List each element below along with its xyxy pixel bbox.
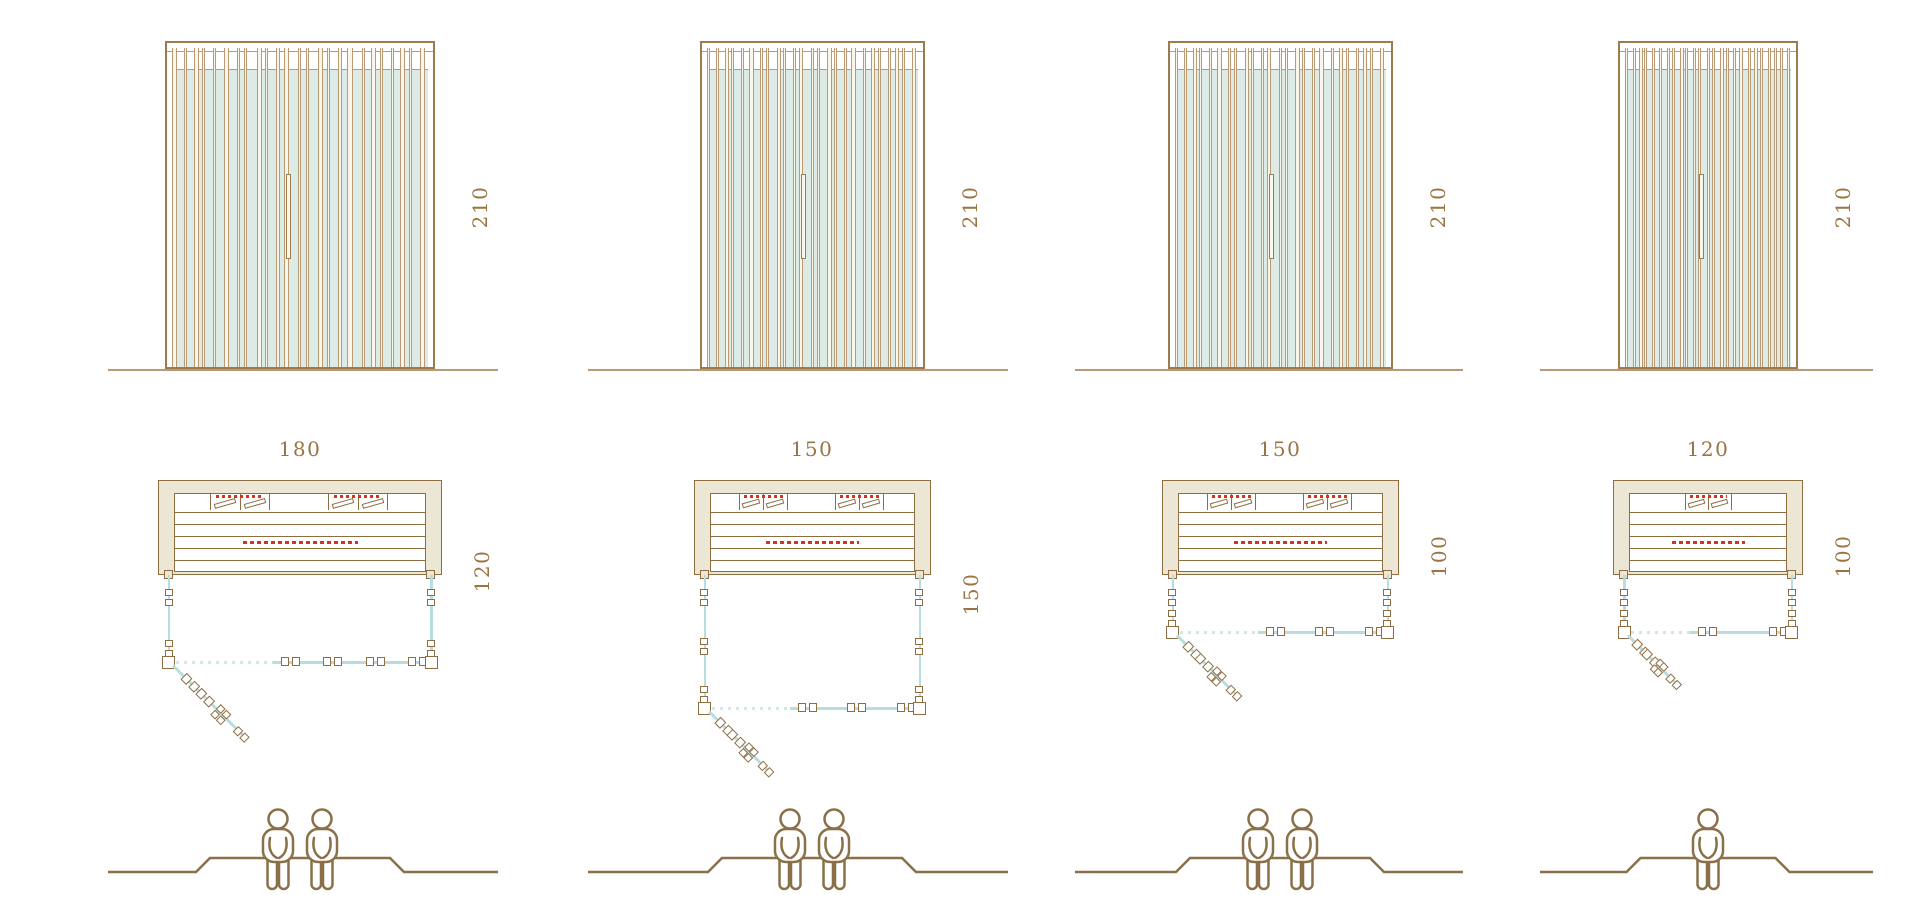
- elevation-slat: [716, 48, 719, 367]
- glass-clamp: [700, 638, 708, 645]
- glass-clamp: [809, 703, 817, 712]
- glass-clamp: [292, 657, 300, 666]
- bench-slat-line: [1179, 548, 1382, 549]
- elevation-slat: [371, 48, 377, 367]
- height-label-text: 210: [1831, 167, 1855, 247]
- elevation-slat: [1720, 48, 1724, 367]
- elevation-slat: [707, 48, 711, 367]
- elevation-slat: [793, 48, 796, 367]
- elevation-slat: [811, 48, 814, 367]
- elevation-slat: [184, 48, 187, 367]
- glass-clamp: [1698, 627, 1706, 636]
- backrest-post: [328, 494, 329, 510]
- elevation-slat: [362, 48, 365, 367]
- glass-clamp: [427, 589, 435, 596]
- height-label: 210: [1803, 195, 1883, 219]
- heater-strip-bench: [1672, 541, 1744, 544]
- elevation-slat: [172, 48, 177, 367]
- elevation-slat: [276, 48, 279, 367]
- height-label-text: 210: [958, 167, 982, 247]
- glass-clamp: [1315, 627, 1323, 636]
- person-icon: [1693, 810, 1723, 890]
- width-label: 120: [1648, 437, 1768, 461]
- elevation-slat: [1659, 48, 1663, 367]
- elevation-slat: [1295, 48, 1300, 367]
- elevation-slat: [1685, 48, 1688, 367]
- elevation-slat: [306, 48, 309, 367]
- elevation-slat: [202, 48, 205, 367]
- backrest-louver: [1234, 499, 1252, 509]
- glass-clamp: [1168, 599, 1176, 606]
- elevation-slat: [1672, 48, 1675, 367]
- depth-label-text: 100: [1831, 516, 1855, 596]
- elevation-slat: [1739, 48, 1742, 367]
- glass-clamp: [1788, 599, 1796, 606]
- elevation-slat: [1302, 48, 1305, 367]
- elevation-slat: [1346, 48, 1349, 367]
- height-label-text: 210: [1426, 167, 1450, 247]
- door-swing: [1627, 634, 1677, 684]
- person-icon: [1243, 810, 1273, 890]
- bench-slat-line: [1630, 524, 1786, 525]
- bench-figure-group: [588, 800, 1008, 910]
- elevation-slat: [1774, 48, 1777, 367]
- elevation-slat: [1319, 48, 1323, 367]
- glass-clamp: [408, 657, 416, 666]
- bench-slat-line: [1630, 512, 1786, 513]
- depth-label-text: 150: [959, 554, 983, 634]
- elevation-slat: [863, 48, 866, 367]
- elevation-slat: [318, 48, 324, 367]
- backrest-post: [1255, 494, 1256, 510]
- backrest-louver: [838, 499, 856, 509]
- bench-slat-line: [175, 548, 425, 549]
- person-icon: [819, 810, 849, 890]
- sauna-size-diagram: 210180120210150150210150100210120100: [0, 0, 1920, 918]
- elevation-slat: [420, 48, 425, 367]
- depth-label: 120: [442, 559, 522, 583]
- depth-label-text: 100: [1427, 516, 1451, 596]
- glass-clamp: [323, 657, 331, 666]
- elevation-slat: [1380, 48, 1384, 367]
- elevation-slat: [1625, 48, 1628, 367]
- bench-slat-line: [175, 560, 425, 561]
- backrest-louver: [1330, 499, 1348, 509]
- elevation-slat: [265, 48, 268, 367]
- bench-slat-line: [711, 512, 914, 513]
- backrest-assembly: [739, 494, 788, 512]
- glass-clamp: [1365, 627, 1373, 636]
- glass-clamp: [1620, 599, 1628, 606]
- elevation-slat: [1667, 48, 1670, 367]
- bench-figure-group: [1075, 800, 1463, 910]
- height-label: 210: [930, 195, 1010, 219]
- elevation-slat: [338, 48, 341, 367]
- glass-clamp: [1383, 599, 1391, 606]
- door-handle: [286, 174, 291, 259]
- glass-clamp: [847, 703, 855, 712]
- elevation-slat: [1339, 48, 1344, 367]
- heater-strip-backrest: [1308, 495, 1347, 498]
- backrest-assembly: [328, 494, 388, 512]
- bench-slat-line: [175, 512, 425, 513]
- person-icon: [307, 810, 337, 890]
- elevation-slat: [380, 48, 383, 367]
- glass-clamp: [915, 648, 923, 655]
- elevation-slat: [298, 48, 301, 367]
- elevation-view: [1168, 41, 1393, 369]
- person-icon: [263, 810, 293, 890]
- glass-clamp: [1277, 627, 1285, 636]
- bench-slat-line: [1179, 536, 1382, 537]
- plan-bench-area: [1629, 493, 1787, 572]
- glass-clamp: [1383, 610, 1391, 617]
- elevation-slat: [1193, 48, 1197, 367]
- elevation-slat: [741, 48, 744, 367]
- elevation-slat: [1633, 48, 1636, 367]
- heater-strip-backrest: [744, 495, 783, 498]
- plan-bench-area: [1178, 493, 1383, 572]
- glass-clamp: [1168, 589, 1176, 596]
- bench-slat-line: [1179, 524, 1382, 525]
- elevation-slat: [1733, 48, 1736, 367]
- plan-bench-area: [710, 493, 915, 572]
- elevation-slat: [1331, 48, 1334, 367]
- elevation-slat: [1261, 48, 1264, 367]
- corner-post: [1785, 626, 1798, 639]
- glass-clamp: [1168, 610, 1176, 617]
- elevation-slat: [1356, 48, 1359, 367]
- elevation-slat: [1760, 48, 1763, 367]
- glass-clamp: [915, 589, 923, 596]
- elevation-slat: [1279, 48, 1282, 367]
- elevation-slat: [912, 48, 916, 367]
- elevation-slat: [749, 48, 754, 367]
- elevation-slat: [851, 48, 855, 367]
- elevation-slat: [244, 48, 247, 367]
- elevation-slat: [1726, 48, 1729, 367]
- backrest-post: [739, 494, 740, 510]
- elevation-slat: [766, 48, 769, 367]
- width-label: 150: [1220, 437, 1340, 461]
- elevation-slat: [827, 48, 832, 367]
- corner-post: [1381, 626, 1394, 639]
- plan-wood-unit: [1162, 480, 1399, 575]
- glass-clamp: [1788, 610, 1796, 617]
- glass-clamp: [427, 640, 435, 647]
- elevation-slat: [1209, 48, 1212, 367]
- door-swing: [1175, 634, 1238, 697]
- backrest-assembly: [1685, 494, 1732, 512]
- elevation-slat: [1652, 48, 1655, 367]
- elevation-view: [1618, 41, 1798, 369]
- depth-label-text: 120: [470, 531, 494, 611]
- backrest-assembly: [210, 494, 270, 512]
- bench-slat-line: [1630, 548, 1786, 549]
- person-icon: [1287, 810, 1317, 890]
- elevation-slat: [409, 48, 412, 367]
- glass-clamp: [858, 703, 866, 712]
- glass-clamp: [700, 599, 708, 606]
- elevation-slat: [1787, 48, 1790, 367]
- glass-clamp: [1709, 627, 1717, 636]
- elevation-slat: [1217, 48, 1222, 367]
- door-opening-dotted-line: [1172, 631, 1258, 634]
- heater-strip-backrest: [216, 495, 264, 498]
- elevation-slat: [1184, 48, 1187, 367]
- width-label: 150: [752, 437, 872, 461]
- glass-clamp: [1788, 589, 1796, 596]
- elevation-slat: [1370, 48, 1373, 367]
- elevation-slat: [731, 48, 734, 367]
- elevation-slat: [1680, 48, 1683, 367]
- door-opening-dotted-line: [1623, 631, 1690, 634]
- door-swing: [707, 710, 770, 773]
- glass-clamp: [1266, 627, 1274, 636]
- elevation-slat: [1780, 48, 1783, 367]
- heater-strip-bench: [243, 541, 359, 544]
- corner-post: [913, 702, 926, 715]
- person-icon: [775, 810, 805, 890]
- glass-clamp: [427, 599, 435, 606]
- ground-line: [588, 369, 1008, 371]
- elevation-slat: [817, 48, 820, 367]
- elevation-view: [700, 41, 925, 369]
- elevation-slat: [777, 48, 781, 367]
- heater-strip-bench: [766, 541, 860, 544]
- bench-slat-line: [1630, 536, 1786, 537]
- plan-wood-unit: [158, 480, 442, 575]
- glass-clamp: [915, 599, 923, 606]
- heater-strip-backrest: [840, 495, 879, 498]
- bench-slat-line: [1630, 560, 1786, 561]
- backrest-louver: [766, 499, 784, 509]
- glass-clamp: [165, 589, 173, 596]
- backrest-post: [1351, 494, 1352, 510]
- width-label: 180: [240, 437, 360, 461]
- elevation-slat: [1748, 48, 1751, 367]
- glass-clamp: [165, 640, 173, 647]
- backrest-assembly: [1207, 494, 1256, 512]
- door-handle: [1269, 174, 1274, 259]
- height-label: 210: [1398, 195, 1478, 219]
- elevation-slat: [871, 48, 876, 367]
- glass-clamp: [165, 599, 173, 606]
- bench-slat-line: [711, 524, 914, 525]
- glass-clamp: [915, 686, 923, 693]
- elevation-slat: [888, 48, 891, 367]
- plan-wood-unit: [694, 480, 931, 575]
- ground-line: [1075, 369, 1463, 371]
- door-handle: [1699, 174, 1704, 259]
- backrest-louver: [862, 499, 880, 509]
- bench-slat-line: [1179, 512, 1382, 513]
- glass-clamp: [1326, 627, 1334, 636]
- elevation-slat: [1639, 48, 1642, 367]
- backrest-louver: [742, 499, 760, 509]
- elevation-slat: [844, 48, 847, 367]
- backrest-louver: [331, 498, 353, 509]
- elevation-slat: [1712, 48, 1715, 367]
- depth-label: 150: [931, 582, 1011, 606]
- glass-clamp: [700, 648, 708, 655]
- bench-slat-line: [175, 524, 425, 525]
- elevation-slat: [1285, 48, 1288, 367]
- backrest-assembly: [1303, 494, 1352, 512]
- elevation-slat: [1754, 48, 1758, 367]
- glass-clamp: [798, 703, 806, 712]
- elevation-slat: [1312, 48, 1315, 367]
- glass-clamp: [700, 686, 708, 693]
- bench-slat-line: [1179, 560, 1382, 561]
- glass-clamp: [366, 657, 374, 666]
- bench-platform-line: [108, 858, 498, 872]
- elevation-slat: [783, 48, 786, 367]
- elevation-slat: [1199, 48, 1202, 367]
- glass-clamp: [334, 657, 342, 666]
- backrest-louver: [362, 498, 384, 509]
- door-opening-dotted-line: [168, 661, 273, 664]
- elevation-slat: [902, 48, 905, 367]
- door-swing: [172, 665, 248, 741]
- elevation-slat: [878, 48, 881, 367]
- plan-wood-unit: [1613, 480, 1803, 575]
- elevation-slat: [400, 48, 405, 367]
- height-label: 210: [440, 195, 520, 219]
- elevation-slat: [895, 48, 899, 367]
- corner-post: [425, 656, 438, 669]
- backrest-post: [269, 494, 270, 510]
- backrest-post: [787, 494, 788, 510]
- depth-label: 100: [1803, 544, 1883, 568]
- elevation-slat: [257, 48, 262, 367]
- backrest-post: [210, 494, 211, 510]
- elevation-slat: [1768, 48, 1771, 367]
- door-opening-dotted-line: [704, 707, 790, 710]
- glass-clamp: [1620, 610, 1628, 617]
- backrest-louver: [213, 498, 235, 509]
- backrest-post: [1731, 494, 1732, 510]
- elevation-slat: [1707, 48, 1710, 367]
- elevation-slat: [1245, 48, 1249, 367]
- backrest-post: [1207, 494, 1208, 510]
- backrest-louver: [1210, 499, 1228, 509]
- elevation-slat: [1175, 48, 1179, 367]
- backrest-post: [1303, 494, 1304, 510]
- elevation-slat: [237, 48, 240, 367]
- glass-clamp: [377, 657, 385, 666]
- heater-strip-backrest: [1690, 495, 1728, 498]
- elevation-slat: [1363, 48, 1367, 367]
- elevation-slat: [1234, 48, 1237, 367]
- glass-clamp: [897, 703, 905, 712]
- bench-slat-line: [175, 536, 425, 537]
- glass-clamp: [281, 657, 289, 666]
- heater-strip-bench: [1234, 541, 1328, 544]
- ground-line: [108, 369, 498, 371]
- elevation-slat: [327, 48, 330, 367]
- backrest-post: [835, 494, 836, 510]
- bench-slat-line: [711, 560, 914, 561]
- backrest-assembly: [835, 494, 884, 512]
- backrest-louver: [1687, 499, 1705, 508]
- glass-clamp: [1620, 589, 1628, 596]
- ground-line: [1540, 369, 1873, 371]
- elevation-slat: [194, 48, 199, 367]
- heater-strip-backrest: [1212, 495, 1251, 498]
- elevation-slat: [213, 48, 216, 367]
- bench-figure-group: [1540, 800, 1873, 910]
- backrest-post: [387, 494, 388, 510]
- elevation-slat: [725, 48, 729, 367]
- elevation-slat: [1228, 48, 1231, 367]
- elevation-slat: [224, 48, 230, 367]
- elevation-slat: [1251, 48, 1254, 367]
- glass-clamp: [700, 589, 708, 596]
- elevation-view: [165, 41, 435, 369]
- backrest-louver: [1711, 499, 1729, 508]
- elevation-slat: [347, 48, 352, 367]
- backrest-louver: [1306, 499, 1324, 509]
- glass-clamp: [915, 638, 923, 645]
- heater-strip-backrest: [334, 495, 382, 498]
- elevation-slat: [1644, 48, 1647, 367]
- bench-slat-line: [711, 536, 914, 537]
- backrest-post: [883, 494, 884, 510]
- plan-bench-area: [174, 493, 426, 572]
- glass-clamp: [1769, 627, 1777, 636]
- elevation-slat: [834, 48, 837, 367]
- backrest-post: [1685, 494, 1686, 510]
- bench-slat-line: [711, 548, 914, 549]
- elevation-slat: [760, 48, 763, 367]
- height-label-text: 210: [468, 167, 492, 247]
- bench-figure-group: [108, 800, 498, 910]
- elevation-slat: [1693, 48, 1696, 367]
- glass-clamp: [1383, 589, 1391, 596]
- backrest-louver: [243, 498, 265, 509]
- elevation-slat: [391, 48, 394, 367]
- door-handle: [801, 174, 806, 259]
- depth-label: 100: [1399, 544, 1479, 568]
